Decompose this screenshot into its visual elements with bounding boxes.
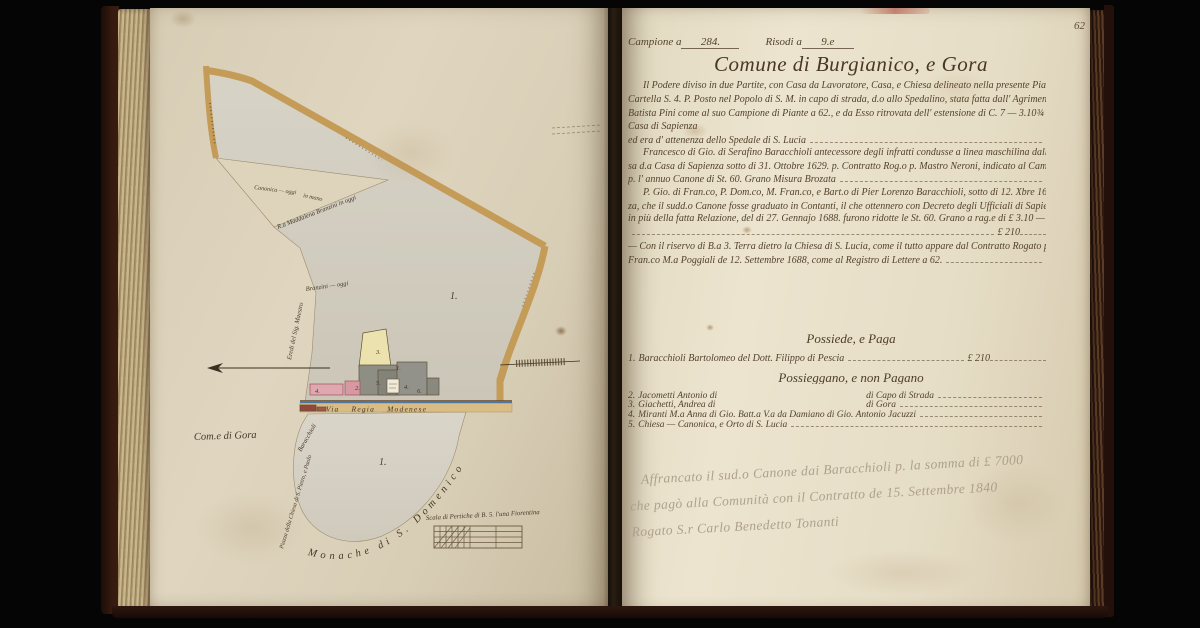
line-text: in più della fatta Relazione, del di 27.… <box>628 213 1046 225</box>
leader-line <box>1020 234 1046 235</box>
paragraph-line: P. Gio. di Fran.co, P. Dom.co, M. Fran.c… <box>628 187 1046 199</box>
paragraph-line: Francesco di Gio. di Serafino Baracchiol… <box>628 147 1046 159</box>
paragraph-line: Il Podere diviso in due Partite, con Cas… <box>628 80 1046 92</box>
paragraph-line: — Con il riservo di B.a 3. Terra dietro … <box>628 241 1046 253</box>
building-number: 5. <box>376 380 381 387</box>
scale-label: Scala di Pertiche di B. 5. l'una Fiorent… <box>426 509 541 522</box>
leader-line <box>990 360 1046 361</box>
paragraph-line: ed era d' attenenza dello Spedale di S. … <box>628 135 1046 147</box>
row-number: 5. <box>628 419 635 431</box>
leader-line <box>938 397 1042 398</box>
gray-building <box>427 378 439 395</box>
amount-value: £ 210 <box>998 227 1021 239</box>
building-number: 3. <box>375 349 381 356</box>
leader-line <box>900 406 1042 407</box>
paragraph-line: p. l' annuo Canone di St. 60. Grano Misu… <box>628 174 1046 186</box>
line-text: p. l' annuo Canone di St. 60. Grano Misu… <box>628 174 836 186</box>
page-number: 62 <box>1074 20 1085 32</box>
left-page: 1. 1. Via Regia Modenese Com.e di Gora S… <box>150 8 608 614</box>
line-text: Fran.co M.a Poggiali de 12. Settembre 16… <box>628 255 942 267</box>
owner-name: Baracchioli Bartolomeo del Dott. Filippo… <box>639 353 845 365</box>
amount-value: £ 210 <box>968 353 991 365</box>
amount-line: £ 210 <box>628 227 1046 239</box>
paragraph-line: Cartella S. 4. P. Posto nel Popolo di S.… <box>628 94 1046 106</box>
scale-bar <box>434 526 522 548</box>
leader-line <box>632 234 994 235</box>
possieggano-heading: Possieggano, e non Pagano <box>628 372 1046 384</box>
pencil-annotation: Affrancato il sud.o Canone dai Baracchio… <box>628 447 1032 546</box>
left-page-stack-edge <box>118 9 151 611</box>
possiede-row: 1. Baracchioli Bartolomeo del Dott. Fili… <box>628 353 1046 365</box>
comune-gora-label: Com.e di Gora <box>194 430 257 443</box>
stain <box>822 548 982 598</box>
paragraph-line: in più della fatta Relazione, del di 27.… <box>628 213 1046 225</box>
right-page: 62 Campione a 284. Risodi a 9.e Comune d… <box>622 8 1090 616</box>
red-building <box>300 405 316 411</box>
parcel-number: 1. <box>379 457 387 468</box>
boundary-label: Eredi del Sig. Maestro <box>286 301 305 361</box>
book-bottom-board <box>112 606 1108 618</box>
paragraph-line: sa d.a Casa di Sapienza sotto di 31. Ott… <box>628 161 1046 173</box>
building-number: 1. <box>396 365 401 372</box>
line-text: ed era d' attenenza dello Spedale di S. … <box>628 135 806 147</box>
boundary-dashes <box>552 125 602 134</box>
page-title: Comune di Burgianico, e Gora <box>642 52 1060 76</box>
book-left-cover <box>101 6 119 614</box>
book-photo: { "palette": { "page_left": "#dcd2ba", "… <box>0 0 1200 628</box>
leader-line <box>840 181 1042 182</box>
leader-line <box>946 262 1042 263</box>
owner-name: Chiesa — Canonica, e Orto di S. Lucia <box>638 419 787 431</box>
parcels <box>206 68 545 541</box>
building-plaque <box>387 379 399 393</box>
paragraph-line: Casa di Sapienza <box>628 121 1046 133</box>
stain <box>706 324 714 331</box>
paragraph-line: za, che il sudd.o Canone fosse graduato … <box>628 201 1046 213</box>
parcel-number: 1. <box>450 291 458 302</box>
risodi-value: 9.e <box>802 36 854 49</box>
building-number: 4. <box>315 388 320 395</box>
red-building <box>317 407 326 411</box>
paragraph-line: Fran.co M.a Poggiali de 12. Settembre 16… <box>628 255 1046 267</box>
building-number: 2. <box>355 385 360 392</box>
tower-building <box>359 329 391 367</box>
risodi-label: Risodi a <box>765 36 801 48</box>
stain <box>860 8 930 14</box>
gray-building <box>397 362 427 395</box>
register-header: Campione a 284. Risodi a 9.e <box>628 36 1046 49</box>
leader-line <box>848 360 963 361</box>
possiede-heading: Possiede, e Paga <box>628 333 1046 345</box>
leader-line <box>920 416 1042 417</box>
leader-line <box>791 426 1042 427</box>
paragraph-line: Batista Pini come al suo Campione di Pia… <box>628 108 1046 120</box>
book-right-cover <box>1104 5 1114 617</box>
road-label: Via Regia Modenese <box>326 405 427 414</box>
leader-line <box>810 142 1042 143</box>
building-number: 4. <box>404 384 409 391</box>
cadastral-map: 1. 1. Via Regia Modenese Com.e di Gora S… <box>150 8 608 614</box>
campione-label: Campione a <box>628 36 681 48</box>
row-number: 1. <box>628 353 636 365</box>
table-row: 5. Chiesa — Canonica, e Orto di S. Lucia <box>628 419 1046 431</box>
building-number: 6. <box>417 388 422 395</box>
lower-parcel <box>293 412 466 541</box>
campione-value: 284. <box>681 36 739 49</box>
